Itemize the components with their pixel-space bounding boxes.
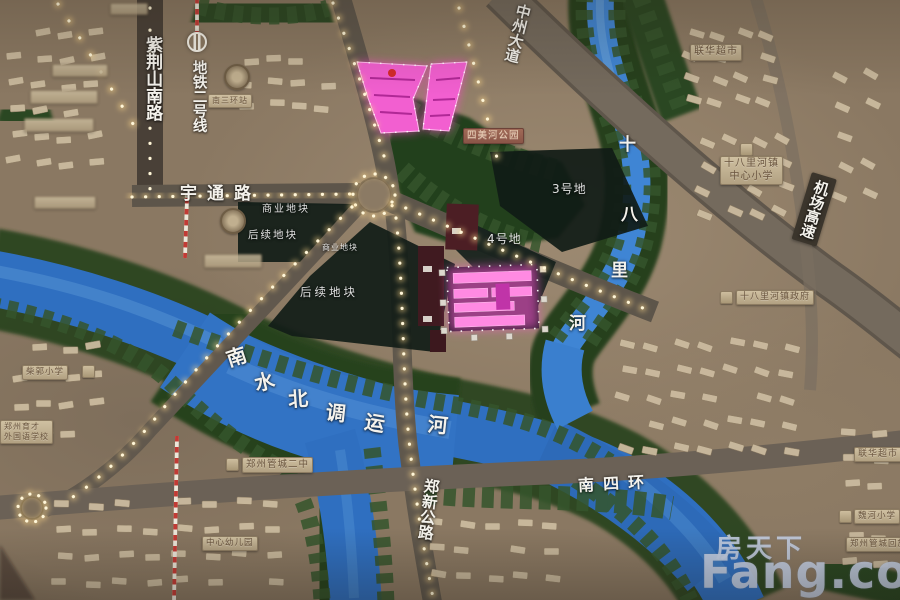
metro-logo-icon [187, 32, 207, 52]
building-logo-disc [220, 208, 246, 234]
canal-char-3: 北 [287, 382, 309, 412]
road-label-yutong: 宇通路 [180, 179, 261, 204]
metro-station-plaque: 南三环站 [208, 94, 252, 108]
corner-shadow [0, 545, 35, 600]
watermark-en: Fang.com [700, 545, 900, 599]
poi-yucai-school: 郑州育才 外国语学校 [0, 420, 53, 444]
scale-model-map-photo: 紫荆山南路 地铁二号线 南三环站 宇通路 中州大道 机场高速 南四环 郑新公路 … [0, 0, 900, 600]
poi-kindergarten: 中心幼儿园 [202, 536, 258, 551]
poi-center-primary-school: 十八里河镇 中心小学 [720, 156, 783, 185]
pink-lit-site-center [439, 264, 549, 342]
plot-label-future-1: 后续地块 [248, 227, 298, 242]
plot-label-future-2: 后续地块 [300, 284, 358, 300]
illegible-plaque [204, 254, 262, 268]
yucai-line1: 郑州育才 [4, 422, 49, 432]
illegible-plaque [52, 64, 108, 77]
poi-town-government: 十八里河镇政府 [736, 290, 814, 305]
illegible-plaque [34, 196, 96, 209]
plot-label-commercial-1: 商业地块 [262, 200, 310, 215]
center-primary-line1: 十八里河镇 [724, 158, 779, 171]
river-char-shibalihe-1: 十 [619, 130, 636, 155]
poi-weihe-primary: 魏河小学 [854, 509, 900, 524]
chaiguo-plaque-icon [82, 365, 95, 378]
plot-label-no3: 3号地 [552, 180, 587, 197]
river-char-shibalihe-2: 八 [621, 200, 638, 225]
road-label-south-4th-ring: 南四环 [577, 468, 653, 496]
station-roundel-icon [224, 64, 250, 90]
guancheng2-plaque-icon [226, 458, 239, 471]
river-char-shibalihe-3: 里 [611, 256, 628, 281]
poi-chaiguo-primary: 柴郭小学 [22, 365, 68, 380]
yucai-line2: 外国语学校 [4, 432, 49, 442]
school-plaque-icon [740, 143, 753, 156]
canal-char-6: 河 [427, 408, 450, 439]
plot-label-commercial-2: 商业地块 [322, 242, 358, 253]
poi-lianhua-supermarket-right: 联华超市 [854, 447, 900, 462]
illegible-plaque [110, 3, 148, 15]
canal-char-4: 调 [325, 396, 348, 427]
poi-guancheng-no2-middle: 郑州管城二中 [242, 457, 313, 473]
weihe-plaque-icon [839, 510, 852, 523]
river-char-shibalihe-4: 河 [569, 309, 586, 334]
illegible-plaque [24, 118, 94, 132]
center-primary-line2: 中心小学 [724, 171, 779, 184]
poi-river-park: 四美河公园 [463, 128, 524, 144]
metro-line2-label: 地铁二号线 [190, 60, 207, 133]
plot-label-no4: 4号地 [487, 230, 522, 247]
gov-plaque-icon [720, 291, 733, 304]
poi-lianhua-supermarket-top: 联华超市 [690, 44, 742, 61]
illegible-plaque [30, 90, 98, 104]
road-label-zijinshan-south: 紫荆山南路 [141, 36, 163, 121]
